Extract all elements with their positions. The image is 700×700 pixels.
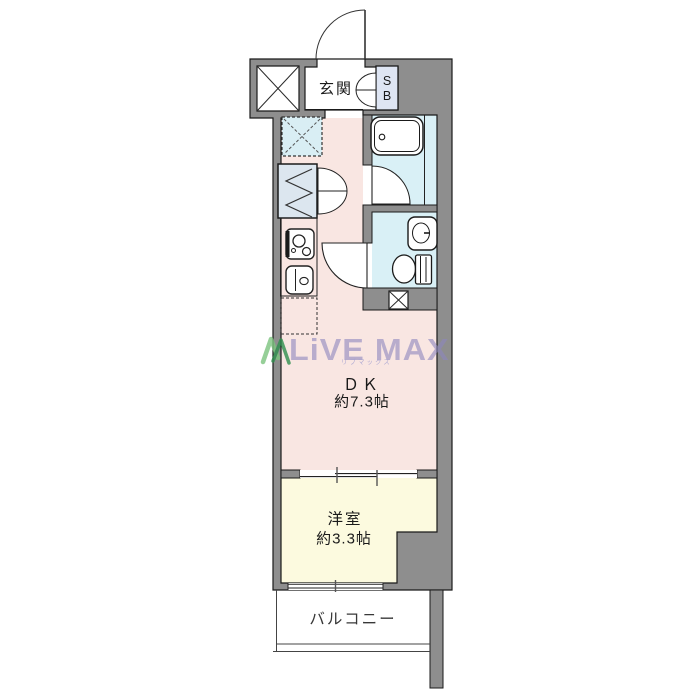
- washbasin-icon: [408, 217, 437, 250]
- bathtub-icon: [371, 117, 423, 155]
- western-room-label: 洋室: [327, 507, 362, 529]
- wall-stub-left: [281, 470, 300, 478]
- sink-icon: [286, 266, 313, 294]
- pipe-space-icon: [389, 291, 408, 309]
- entrance-step: [325, 110, 363, 118]
- floor-plan-canvas: 玄関 S B ＤＫ 約7.3帖 洋室 約3.3帖 バルコニー LiVE MAX …: [0, 0, 700, 700]
- western-room-size-label: 約3.3帖: [316, 528, 372, 549]
- elevator-shaft-icon: [257, 66, 299, 111]
- washing-machine-space-icon: [282, 117, 322, 156]
- balcony-label: バルコニー: [309, 607, 396, 629]
- watermark-kana-text: リブマックス: [341, 356, 392, 366]
- entrance-door-icon: [316, 10, 365, 59]
- stove-icon: [286, 229, 315, 259]
- balcony-side-wall: [430, 590, 443, 688]
- wall-stub-right: [417, 470, 437, 478]
- shoe-box-label-s: S: [383, 74, 391, 89]
- shoe-box-label: S B: [383, 74, 391, 104]
- shoe-box-label-b: B: [383, 89, 391, 104]
- dk-size-label: 約7.3帖: [334, 391, 390, 412]
- toilet-icon: [393, 255, 432, 284]
- entrance-label: 玄関: [319, 78, 353, 99]
